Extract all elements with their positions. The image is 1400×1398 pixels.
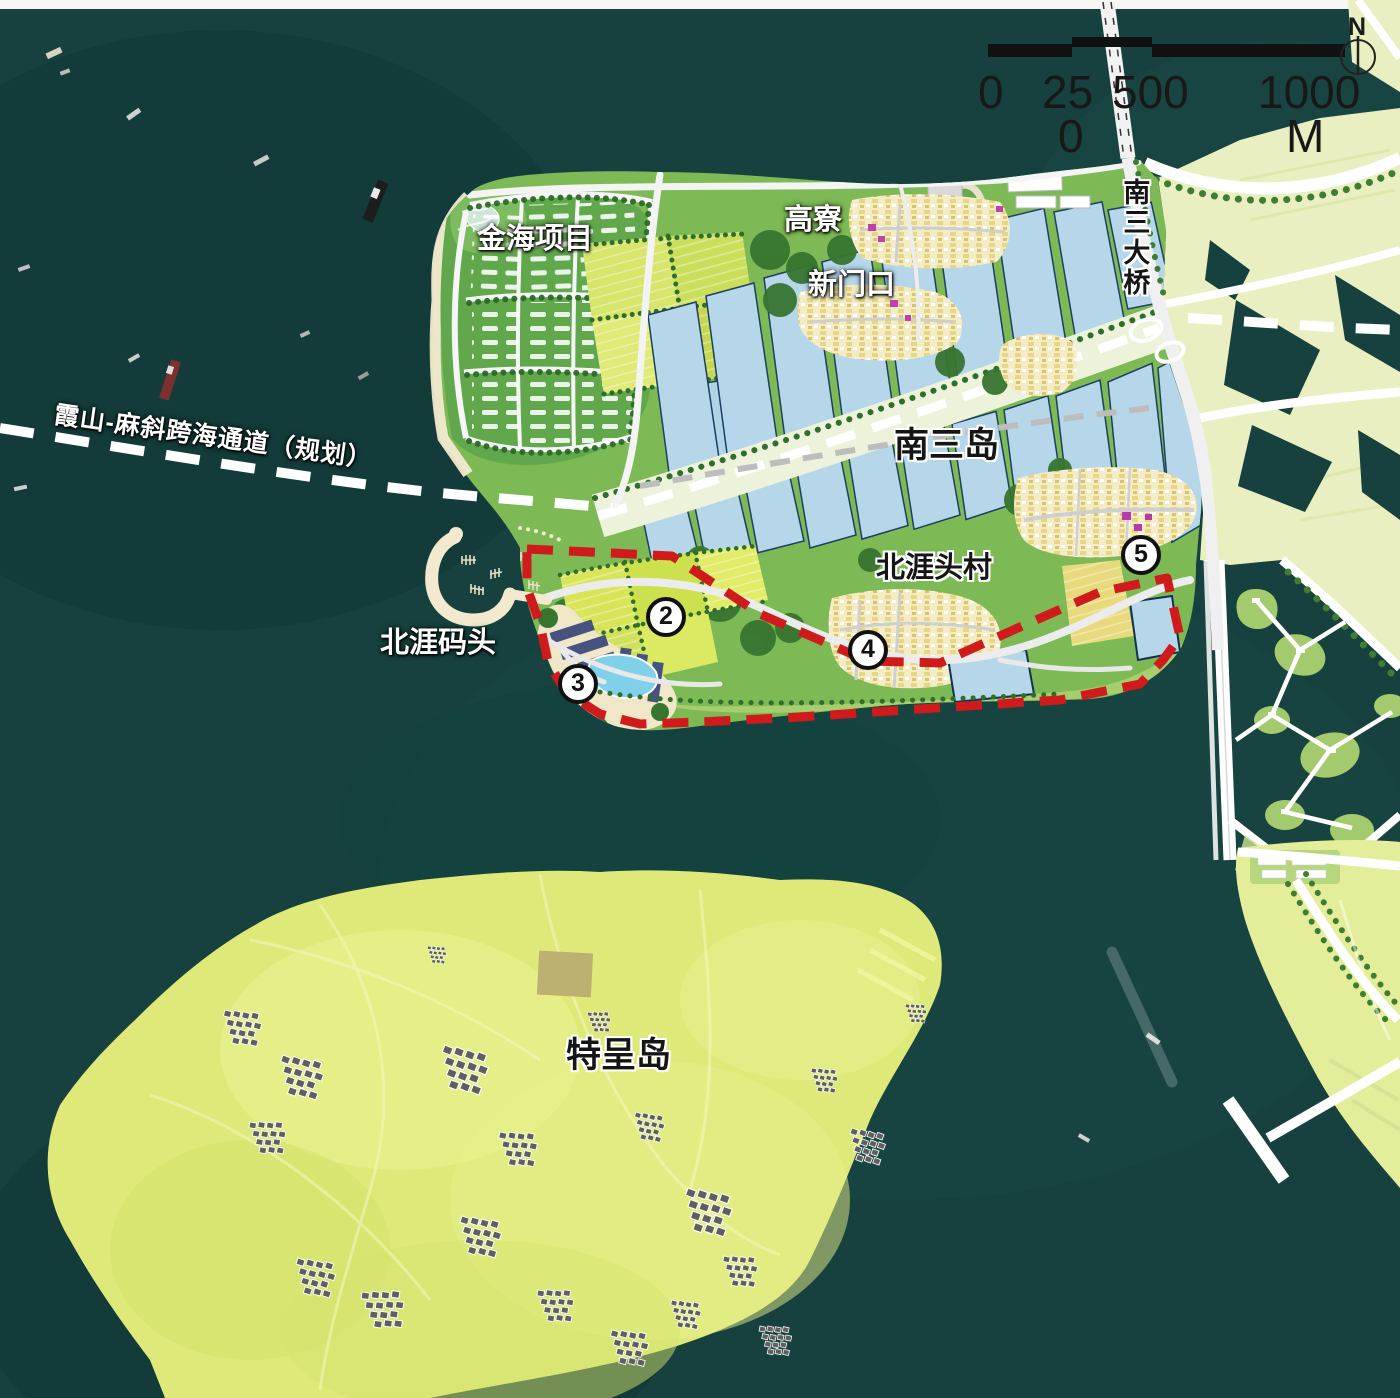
scale-tick-250-bottom: 0 <box>1058 112 1084 160</box>
site-marker-3: 3 <box>558 664 598 704</box>
north-label: N <box>1348 14 1366 40</box>
site-marker-5: 5 <box>1121 535 1161 575</box>
master-plan-map: 霞山-麻斜跨海通道（规划） 金海项目 高寮 新门口 南三大桥 南三岛 北涯头村 … <box>0 0 1400 1398</box>
scale-unit: M <box>1286 112 1324 160</box>
scale-tick-500: 500 <box>1112 68 1189 116</box>
site-marker-4: 4 <box>848 630 888 670</box>
techeng-island-label: 特呈岛 <box>566 1038 671 1075</box>
gaoliao-village <box>849 194 1010 268</box>
map-top-border <box>0 0 1400 9</box>
xinmenkou-label: 新门口 <box>808 270 895 300</box>
beiyatou-village-label: 北涯头村 <box>876 553 992 583</box>
gaoliao-label: 高寮 <box>784 205 842 235</box>
jinhai-label: 金海项目 <box>477 224 593 254</box>
nansan-island-label: 南三岛 <box>894 428 999 465</box>
nansan-bridge-label: 南三大桥 <box>1120 178 1148 298</box>
site-marker-2: 2 <box>646 597 686 637</box>
scale-tick-0: 0 <box>978 68 1004 116</box>
map-graphics <box>0 0 1400 1398</box>
beiya-wharf-label: 北涯码头 <box>380 628 496 658</box>
mid-village <box>999 334 1077 396</box>
